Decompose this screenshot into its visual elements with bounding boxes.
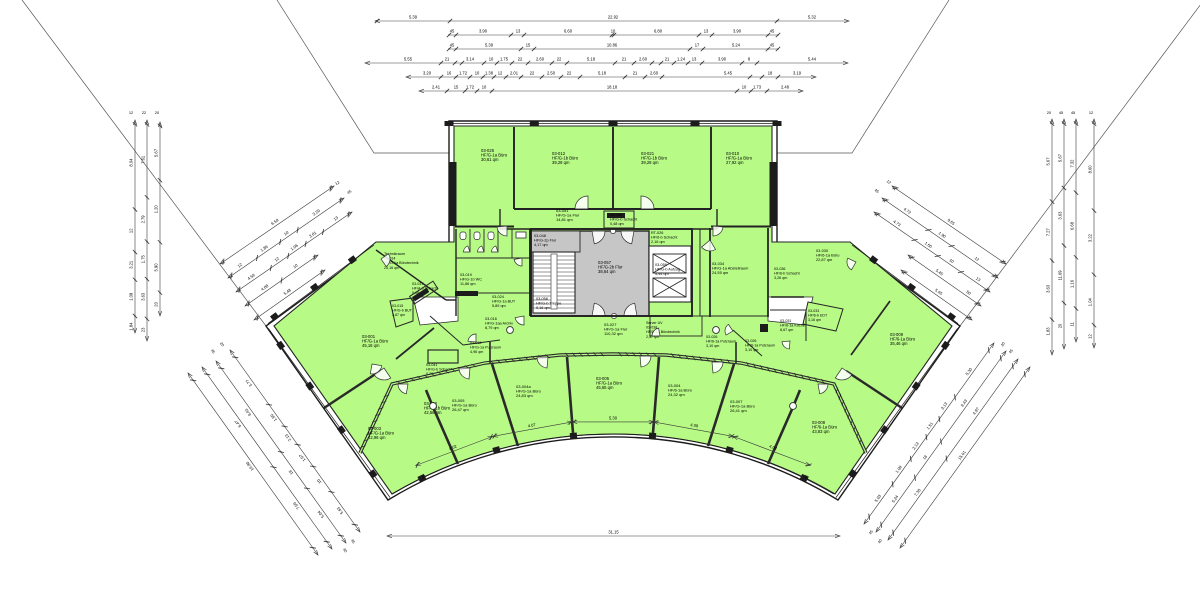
svg-text:2.60: 2.60: [639, 57, 648, 62]
svg-text:43,83 qm: 43,83 qm: [812, 429, 830, 434]
svg-text:HF/G-1a Bürotechnik: HF/G-1a Bürotechnik: [646, 330, 680, 334]
svg-text:45: 45: [450, 29, 455, 34]
svg-text:8,67 qm: 8,67 qm: [780, 328, 793, 332]
svg-text:8.60: 8.60: [1088, 165, 1093, 174]
svg-text:7.61: 7.61: [141, 155, 146, 164]
svg-text:1.09: 1.09: [129, 292, 134, 301]
svg-text:20: 20: [154, 301, 159, 306]
svg-text:45,65 qm: 45,65 qm: [596, 385, 614, 390]
svg-text:12: 12: [498, 71, 503, 76]
svg-text:03-033: 03-033: [808, 309, 819, 313]
svg-text:18.18: 18.18: [607, 85, 618, 90]
svg-text:03-016: 03-016: [485, 317, 497, 321]
svg-text:42,56 qm: 42,56 qm: [424, 410, 442, 415]
svg-text:03-017: 03-017: [412, 282, 423, 286]
svg-text:3,10 qm: 3,10 qm: [745, 348, 758, 352]
svg-text:5.18: 5.18: [587, 57, 596, 62]
svg-text:5.67: 5.67: [1046, 157, 1051, 166]
svg-text:HF/6-1a Putzraum: HF/6-1a Putzraum: [745, 344, 775, 348]
svg-text:2.01: 2.01: [510, 71, 519, 76]
svg-text:6.80: 6.80: [654, 29, 663, 34]
svg-text:45: 45: [770, 43, 775, 48]
svg-text:1.83: 1.83: [1046, 327, 1051, 336]
svg-text:1.73: 1.73: [753, 85, 762, 90]
svg-text:1.75: 1.75: [500, 57, 509, 62]
svg-text:110,32 qm: 110,32 qm: [604, 331, 623, 336]
svg-text:5.45: 5.45: [724, 71, 733, 76]
svg-text:10: 10: [489, 57, 494, 62]
svg-text:10: 10: [482, 85, 487, 90]
svg-text:HF/G-1b WC: HF/G-1b WC: [460, 278, 482, 282]
svg-text:HF/G-2p Flur: HF/G-2p Flur: [534, 239, 557, 243]
svg-text:8.04: 8.04: [129, 158, 134, 167]
svg-text:21: 21: [445, 57, 450, 62]
svg-text:42,96 qm: 42,96 qm: [368, 435, 386, 440]
svg-text:1.75: 1.75: [141, 254, 146, 263]
svg-text:HF/6-1a Putzraum: HF/6-1a Putzraum: [706, 340, 736, 344]
svg-text:3.14: 3.14: [466, 57, 475, 62]
svg-text:HF/6-b Schacht: HF/6-b Schacht: [774, 272, 800, 276]
svg-text:35,46 qm: 35,46 qm: [890, 341, 908, 346]
svg-text:5.90: 5.90: [154, 263, 159, 272]
svg-text:3,87 qm: 3,87 qm: [392, 313, 405, 317]
svg-text:03-041: 03-041: [426, 363, 437, 367]
svg-text:2.60: 2.60: [650, 71, 659, 76]
svg-text:HF/G-1aa Archiv: HF/G-1aa Archiv: [485, 322, 513, 326]
svg-text:45: 45: [1059, 110, 1063, 115]
svg-text:22: 22: [557, 57, 562, 62]
svg-text:HF/G-b Treppe: HF/G-b Treppe: [536, 302, 561, 306]
svg-text:22: 22: [567, 71, 572, 76]
svg-text:16: 16: [447, 71, 452, 76]
svg-text:03-031: 03-031: [780, 319, 791, 323]
svg-text:03-049: 03-049: [610, 213, 622, 217]
svg-text:1.72: 1.72: [466, 85, 475, 90]
svg-text:45: 45: [450, 43, 455, 48]
svg-text:10.86: 10.86: [607, 43, 618, 48]
svg-text:7.32: 7.32: [1070, 159, 1075, 168]
svg-text:21: 21: [633, 71, 638, 76]
svg-text:HF/6-1a Küche: HF/6-1a Küche: [780, 324, 805, 328]
svg-text:03-019: 03-019: [460, 273, 472, 277]
svg-text:10: 10: [475, 71, 480, 76]
svg-text:3.22: 3.22: [1088, 233, 1093, 242]
svg-text:13: 13: [704, 29, 709, 34]
svg-text:3.63: 3.63: [1046, 284, 1051, 293]
svg-text:1.38: 1.38: [485, 71, 494, 76]
svg-text:45: 45: [770, 29, 775, 34]
svg-text:3.90: 3.90: [479, 29, 488, 34]
svg-text:30,61 qm: 30,61 qm: [481, 157, 499, 162]
svg-text:24,83 qm: 24,83 qm: [516, 393, 533, 398]
svg-text:03-059: 03-059: [655, 263, 667, 267]
svg-text:5.67: 5.67: [154, 148, 159, 157]
svg-text:3.90: 3.90: [733, 29, 742, 34]
svg-text:17: 17: [695, 43, 700, 48]
svg-text:20: 20: [1058, 323, 1063, 328]
svg-text:3.63: 3.63: [1058, 211, 1063, 220]
svg-text:03-036: 03-036: [774, 267, 785, 271]
svg-text:45,18 qm: 45,18 qm: [362, 343, 380, 348]
svg-text:5.67: 5.67: [1058, 153, 1063, 162]
svg-text:13: 13: [516, 29, 521, 34]
svg-text:03-024: 03-024: [492, 295, 504, 299]
svg-text:1.72: 1.72: [459, 71, 468, 76]
svg-text:38,64 qm: 38,64 qm: [598, 269, 616, 274]
svg-text:03-026: 03-026: [706, 335, 717, 339]
svg-text:2.79: 2.79: [141, 215, 146, 224]
svg-text:3,16 qm: 3,16 qm: [808, 318, 821, 322]
svg-text:10: 10: [742, 85, 747, 90]
svg-text:21: 21: [665, 57, 670, 62]
svg-text:03-058: 03-058: [536, 297, 548, 301]
svg-text:12: 12: [1089, 110, 1093, 115]
svg-text:5.30: 5.30: [609, 416, 618, 421]
svg-text:12: 12: [129, 228, 134, 233]
svg-text:4,96 qm: 4,96 qm: [470, 350, 483, 354]
svg-text:26,41 qm: 26,41 qm: [730, 408, 747, 413]
svg-text:1.20: 1.20: [154, 205, 159, 214]
svg-text:0,48 qm: 0,48 qm: [610, 222, 624, 226]
svg-text:13: 13: [692, 57, 697, 62]
svg-text:03-026: 03-026: [745, 339, 756, 343]
svg-text:HF/6-b Schacht: HF/6-b Schacht: [651, 236, 678, 240]
svg-text:HF/G-1a BUT: HF/G-1a BUT: [492, 300, 516, 304]
svg-text:39,28 qm: 39,28 qm: [641, 160, 659, 165]
svg-text:9,16 qm: 9,16 qm: [536, 306, 550, 310]
svg-text:15: 15: [454, 85, 459, 90]
svg-text:2.41: 2.41: [432, 85, 441, 90]
svg-text:5.39: 5.39: [485, 43, 494, 48]
svg-text:5.55: 5.55: [404, 57, 413, 62]
svg-text:03-048: 03-048: [534, 234, 546, 238]
svg-text:11,86 qm: 11,86 qm: [460, 282, 476, 286]
svg-text:6.60: 6.60: [564, 29, 573, 34]
svg-text:7.27: 7.27: [1046, 228, 1051, 237]
svg-text:2.48: 2.48: [781, 85, 790, 90]
svg-text:21: 21: [622, 57, 627, 62]
svg-text:12: 12: [129, 110, 133, 115]
svg-text:HF/G-b BUT: HF/G-b BUT: [392, 309, 413, 313]
svg-text:5.24: 5.24: [732, 43, 741, 48]
svg-text:10: 10: [611, 29, 616, 34]
svg-text:5.18: 5.18: [598, 71, 607, 76]
svg-text:26,47 qm: 26,47 qm: [452, 407, 469, 412]
svg-text:23: 23: [141, 327, 146, 332]
svg-text:22.92: 22.92: [608, 15, 619, 20]
svg-text:14,81 qm: 14,81 qm: [556, 217, 573, 222]
svg-text:03-015: 03-015: [392, 304, 403, 308]
svg-text:22,87 qm: 22,87 qm: [816, 257, 832, 262]
svg-text:12: 12: [1088, 334, 1093, 339]
svg-text:HF/G-b Aufzug: HF/G-b Aufzug: [655, 268, 680, 272]
svg-text:3,26 qm: 3,26 qm: [774, 276, 787, 280]
svg-text:3.63: 3.63: [141, 292, 146, 301]
svg-text:24,32 qm: 24,32 qm: [668, 392, 685, 397]
svg-text:6.68: 6.68: [1070, 221, 1075, 230]
svg-text:11.69: 11.69: [1058, 270, 1063, 281]
svg-text:3,10 qm: 3,10 qm: [706, 344, 719, 348]
svg-text:22: 22: [142, 110, 146, 115]
svg-text:1.16: 1.16: [1070, 279, 1075, 288]
svg-text:45: 45: [1071, 110, 1075, 115]
svg-text:1.04: 1.04: [1088, 297, 1093, 306]
svg-text:5.39: 5.39: [409, 15, 418, 20]
svg-text:31.15: 31.15: [608, 530, 619, 535]
svg-text:HF/6-b EDT: HF/6-b EDT: [808, 314, 828, 318]
svg-text:3.20: 3.20: [423, 71, 432, 76]
svg-text:Server UV: Server UV: [646, 321, 663, 325]
svg-text:39,28 qm: 39,28 qm: [552, 160, 570, 165]
svg-text:18: 18: [768, 71, 773, 76]
svg-text:4,17 qm: 4,17 qm: [534, 243, 548, 247]
svg-text:3.19: 3.19: [793, 71, 802, 76]
svg-text:HF/G-b Schacht: HF/G-b Schacht: [610, 218, 638, 222]
svg-text:1.84: 1.84: [129, 322, 134, 331]
svg-text:15: 15: [526, 43, 531, 48]
svg-text:24,55 qm: 24,55 qm: [712, 270, 728, 275]
svg-text:2.60: 2.60: [536, 57, 545, 62]
svg-text:5,89 qm: 5,89 qm: [492, 304, 506, 308]
svg-text:22: 22: [518, 57, 523, 62]
svg-text:5.44: 5.44: [808, 57, 817, 62]
svg-text:8,79 qm: 8,79 qm: [485, 326, 499, 330]
svg-text:HF/G-1a Putzraum: HF/G-1a Putzraum: [470, 346, 501, 350]
svg-text:3.21: 3.21: [129, 260, 134, 269]
svg-text:4,44 qm: 4,44 qm: [655, 272, 669, 276]
svg-text:3.90: 3.90: [718, 57, 727, 62]
svg-text:27,92 qm: 27,92 qm: [726, 160, 744, 165]
svg-text:2.50: 2.50: [547, 71, 556, 76]
svg-text:11: 11: [1070, 321, 1075, 326]
svg-text:22: 22: [530, 71, 535, 76]
svg-text:RT-026: RT-026: [651, 231, 663, 235]
svg-text:5.32: 5.32: [808, 15, 817, 20]
svg-text:2,16 qm: 2,16 qm: [651, 240, 665, 244]
svg-text:1.24: 1.24: [677, 57, 686, 62]
